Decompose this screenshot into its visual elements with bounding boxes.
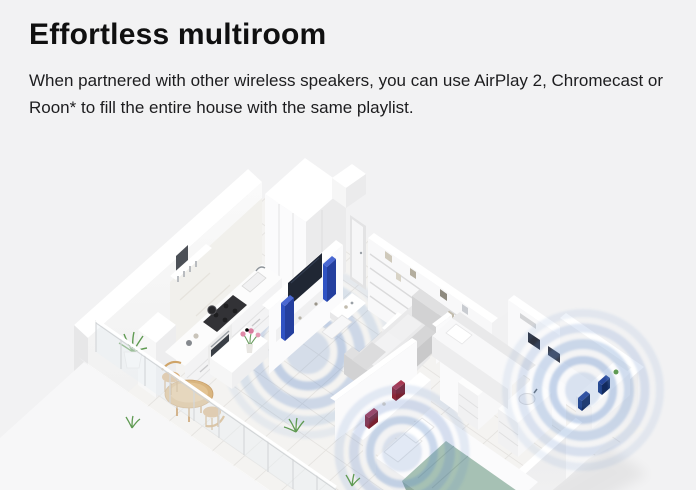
wall-step — [332, 164, 366, 208]
tower-speaker-left — [281, 295, 294, 341]
isometric-apartment — [0, 0, 696, 490]
entry-door — [350, 215, 366, 290]
page: { "header": { "title": "Effortless multi… — [0, 0, 696, 490]
tower-speaker-right — [323, 256, 336, 302]
